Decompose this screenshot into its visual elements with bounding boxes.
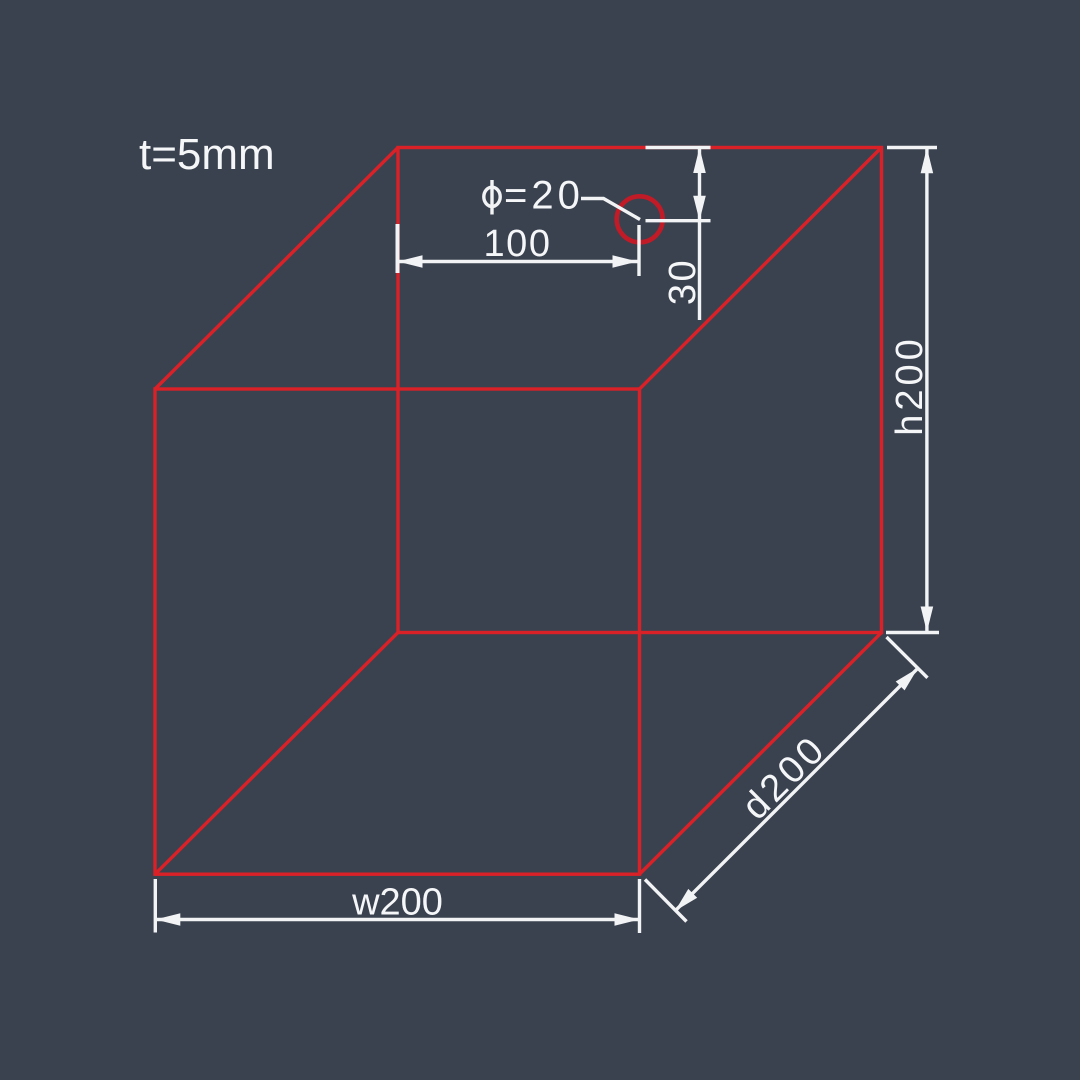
svg-text:t=5mm: t=5mm: [139, 130, 275, 179]
svg-text:h200: h200: [889, 335, 931, 436]
svg-text:100: 100: [484, 223, 552, 265]
svg-text:w200: w200: [351, 882, 443, 924]
svg-text:=20: =20: [504, 174, 584, 218]
svg-text:30: 30: [662, 258, 704, 305]
